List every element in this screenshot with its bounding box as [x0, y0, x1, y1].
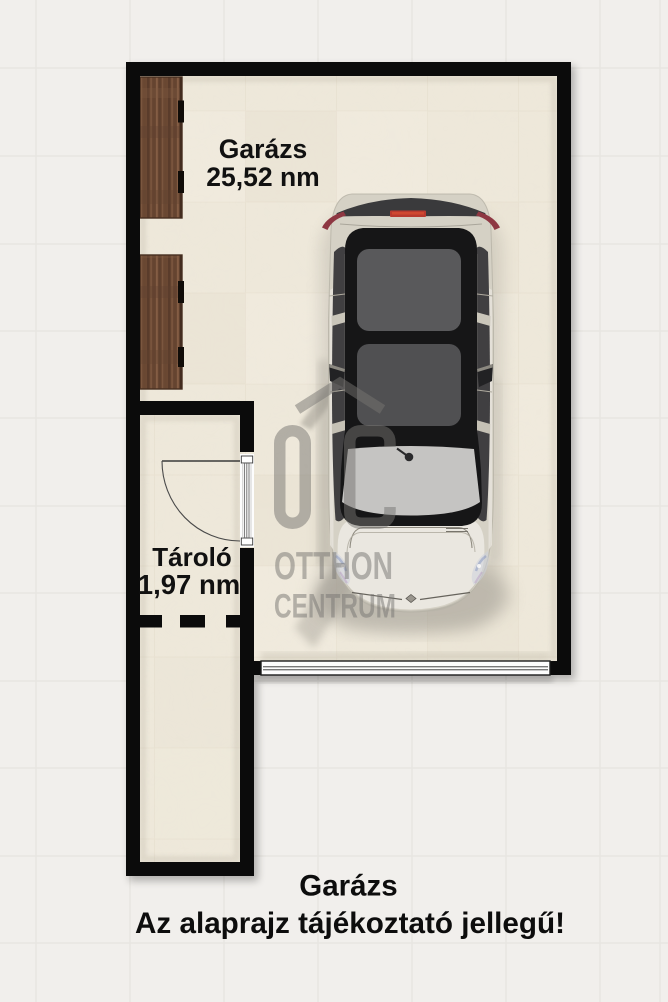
svg-text:Tároló: Tároló [152, 542, 231, 572]
svg-text:25,52 nm: 25,52 nm [206, 162, 319, 192]
svg-text:CENTRUM: CENTRUM [274, 588, 396, 626]
svg-text:OTTHON: OTTHON [274, 545, 393, 588]
svg-text:1,97 nm: 1,97 nm [138, 569, 240, 600]
svg-text:Garázs: Garázs [219, 134, 307, 164]
svg-text:Garázs: Garázs [299, 870, 397, 903]
svg-text:Az alaprajz tájékoztató jelleg: Az alaprajz tájékoztató jellegű! [135, 907, 565, 940]
